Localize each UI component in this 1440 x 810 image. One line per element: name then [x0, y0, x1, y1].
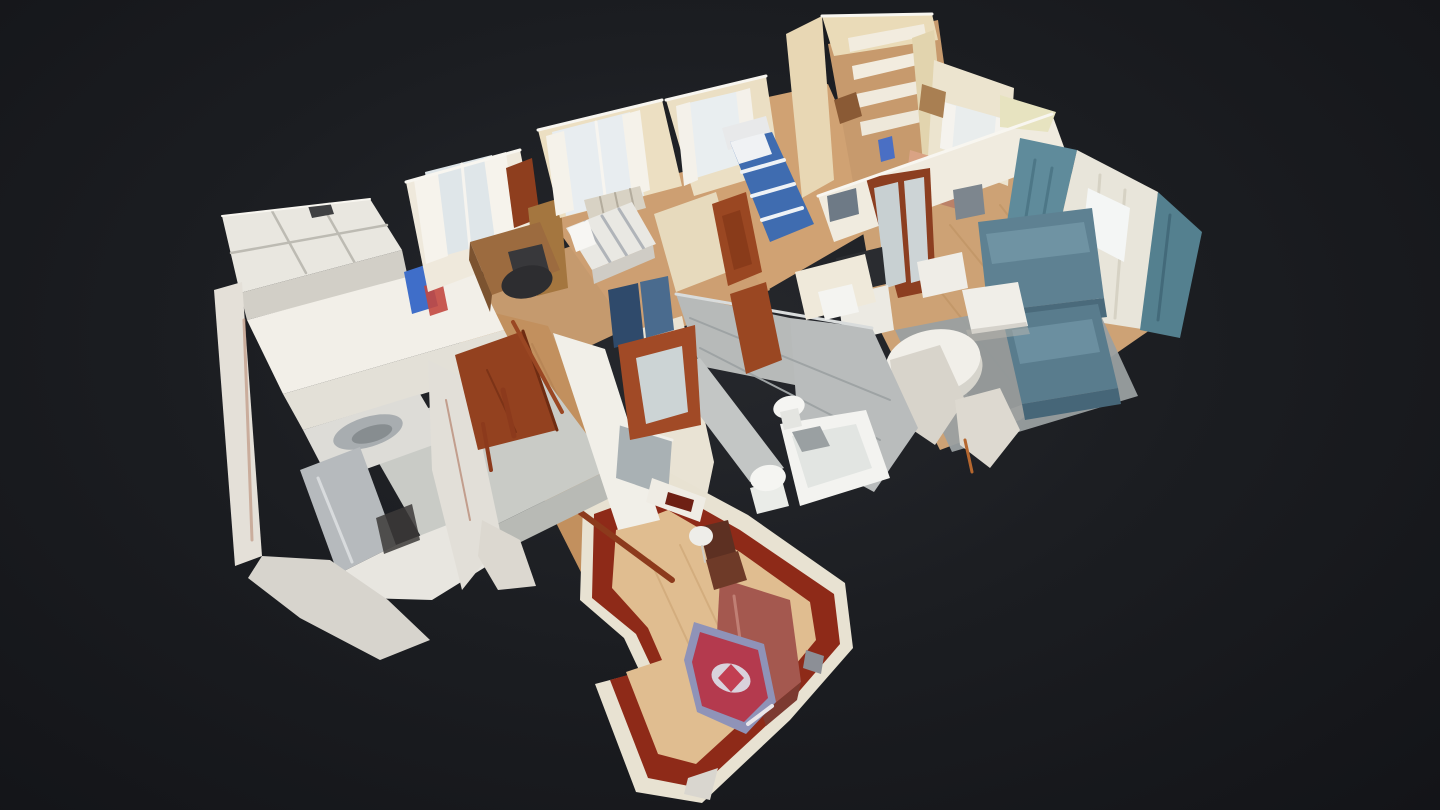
entry-fan-head [689, 526, 713, 546]
wall-cap-closet [822, 14, 932, 16]
closet-blue-tag [878, 136, 895, 162]
living-frame-2 [953, 184, 985, 220]
dollhouse-model[interactable] [0, 0, 1440, 810]
hall-poster-left [608, 283, 644, 348]
dollhouse-shapes [214, 14, 1202, 803]
living-yellow-wall [1000, 95, 1056, 132]
bidet-base [780, 408, 802, 430]
hall-poster-right [640, 276, 674, 338]
viewer-canvas[interactable] [0, 0, 1440, 810]
